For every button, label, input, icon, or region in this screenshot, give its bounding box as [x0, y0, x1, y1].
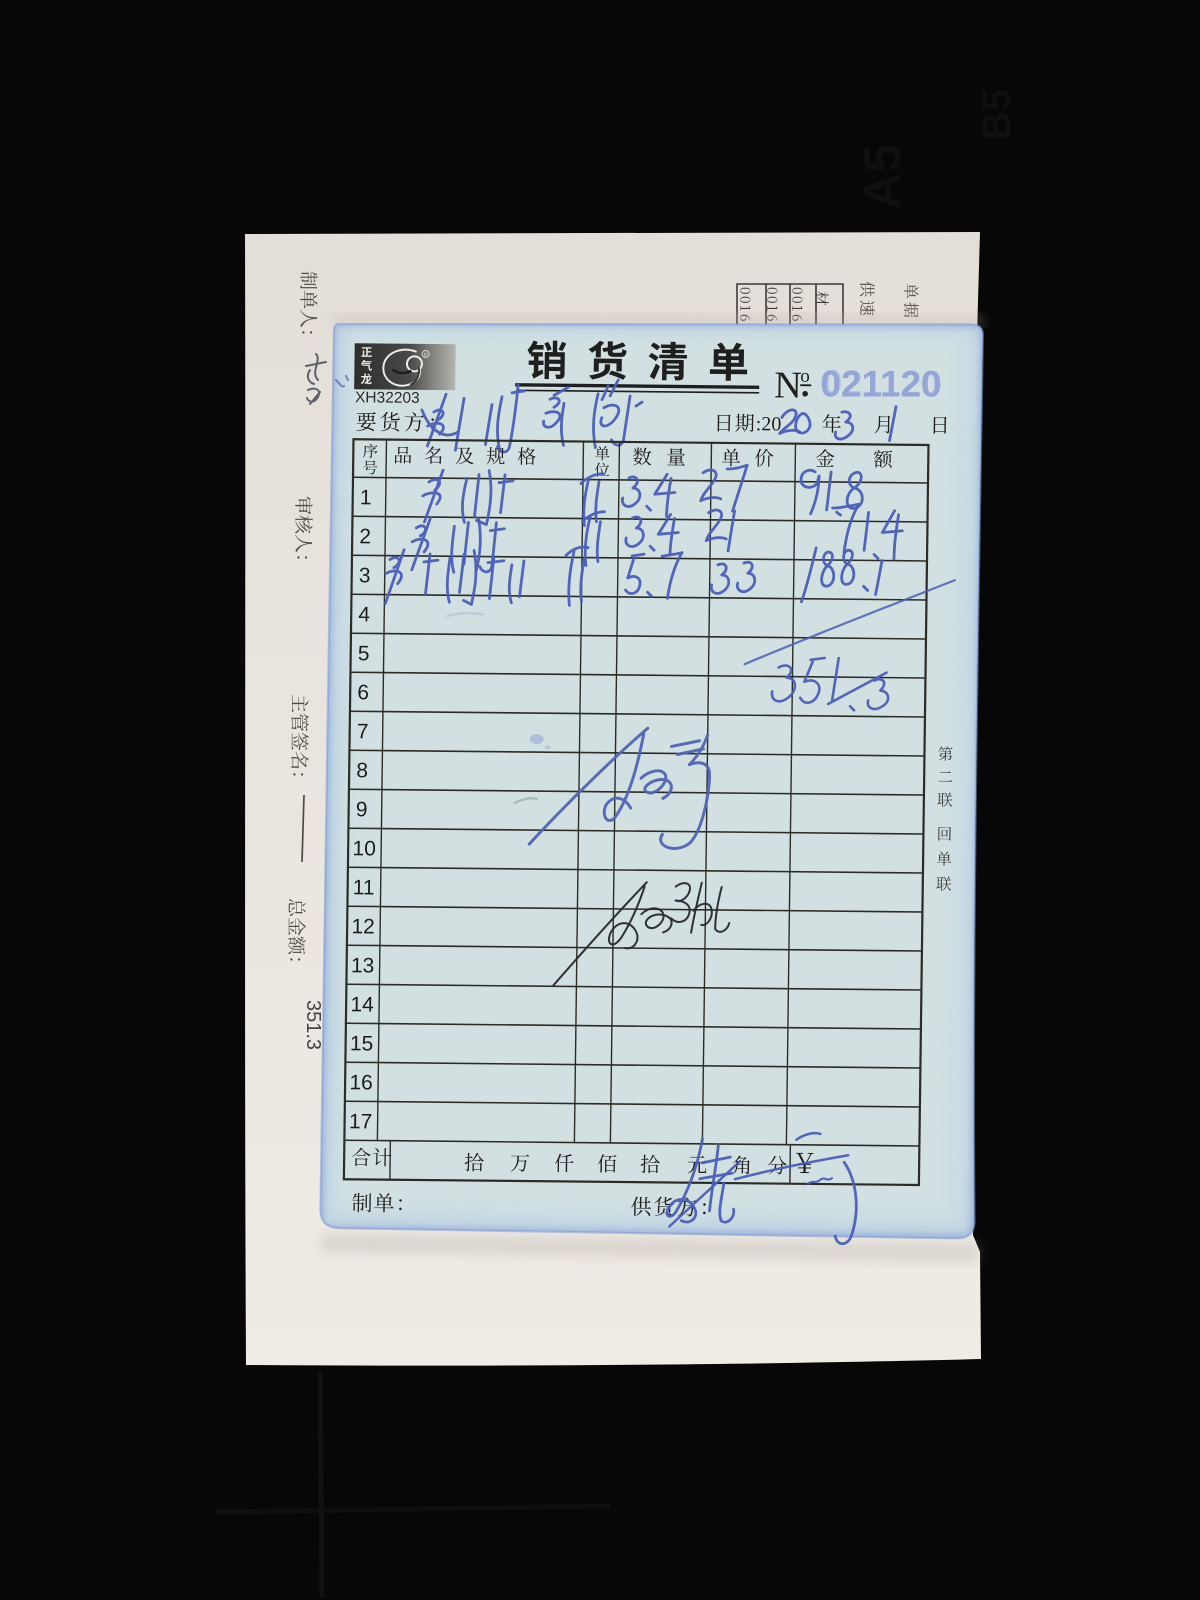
- svg-text:14: 14: [350, 993, 374, 1016]
- svg-text:10: 10: [352, 837, 376, 860]
- svg-text:5: 5: [358, 642, 370, 665]
- svg-text:351.3: 351.3: [302, 1000, 324, 1050]
- svg-text:11: 11: [353, 876, 375, 899]
- svg-text:13: 13: [351, 954, 375, 977]
- svg-text:16: 16: [349, 1071, 373, 1094]
- svg-text:A5: A5: [854, 144, 912, 210]
- svg-text:8: 8: [356, 759, 368, 782]
- svg-text:15: 15: [350, 1032, 374, 1055]
- svg-text:17: 17: [349, 1110, 373, 1133]
- svg-text:1: 1: [360, 486, 372, 509]
- svg-text::20: :20: [756, 413, 782, 435]
- svg-text:6: 6: [357, 681, 369, 704]
- svg-text:o: o: [800, 366, 810, 387]
- svg-text:3: 3: [359, 564, 371, 587]
- svg-text:XH32203: XH32203: [355, 389, 420, 407]
- svg-text:7: 7: [357, 720, 369, 743]
- svg-text:R: R: [424, 353, 429, 359]
- svg-text:N: N: [774, 364, 802, 406]
- svg-text:021120: 021120: [822, 362, 941, 404]
- svg-text:2: 2: [359, 525, 371, 548]
- svg-text:9: 9: [356, 798, 368, 821]
- svg-text:12: 12: [351, 915, 375, 938]
- svg-text:B5: B5: [975, 89, 1019, 140]
- svg-text:4: 4: [358, 603, 370, 626]
